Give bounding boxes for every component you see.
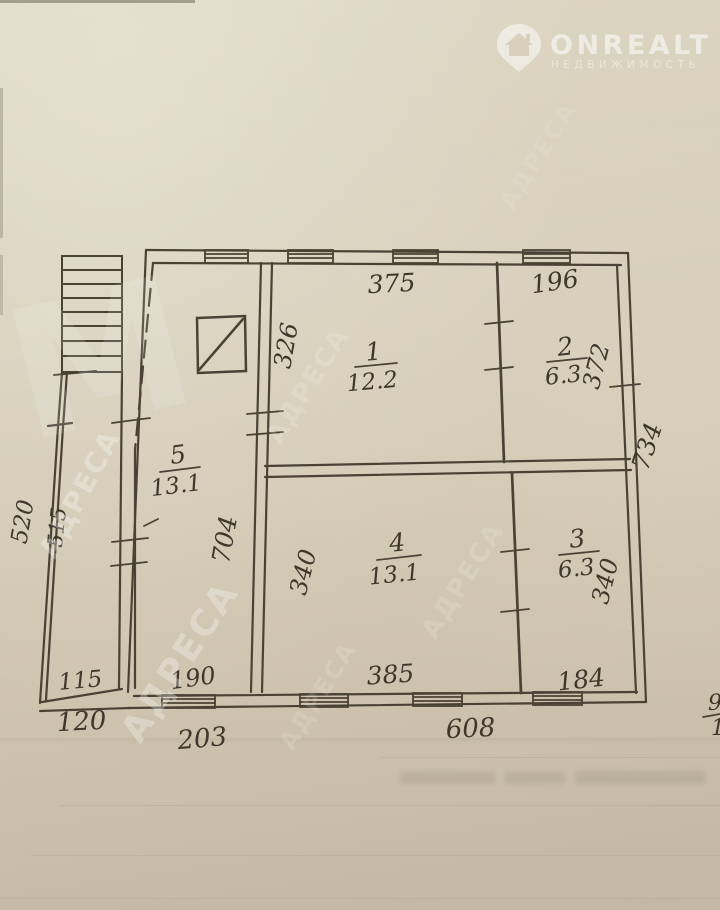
watermark-adresa: АДРЕСА <box>494 97 582 215</box>
room-5-area: 13.1 <box>149 470 203 502</box>
dim-room1-height-left: 326 <box>268 321 304 371</box>
room-1-area: 12.2 <box>346 367 399 397</box>
room-3-area: 6.3 <box>557 554 596 584</box>
partition-room4-room3 <box>512 473 521 693</box>
dim-bottom-total-width: 608 <box>445 713 496 746</box>
dim-room2-width-top: 196 <box>529 264 580 299</box>
dim-room1-width-top: 375 <box>367 268 416 299</box>
dim-right-total-height: 734 <box>626 419 668 473</box>
edge-fragment-denominator: 1 <box>711 716 720 741</box>
watermark-adresa: АДРЕСА <box>416 517 511 644</box>
partition-room1-room2 <box>497 263 504 462</box>
watermarks: М АДРЕСА АДРЕСА АДРЕСА АДРЕСА АДРЕСА АДР… <box>0 97 582 755</box>
onrealt-logo: ONREALT НЕДВИЖИМОСТЬ <box>497 24 711 72</box>
dim-porch-width: 115 <box>57 666 103 696</box>
onrealt-subtitle: НЕДВИЖИМОСТЬ <box>551 59 700 71</box>
stove-symbol <box>197 316 246 373</box>
room-1-number: 1 <box>364 336 382 366</box>
dim-hall-width-outer: 203 <box>175 722 228 756</box>
dim-room3-width-bottom: 184 <box>556 663 606 697</box>
dim-porch-width-outer: 120 <box>56 706 107 739</box>
dim-room4-height-left: 340 <box>284 546 322 597</box>
floor-plan-photo: 1 12.2 2 6.3 3 6.3 4 13.1 5 13.1 375 196… <box>0 0 720 910</box>
room-2-area: 6.3 <box>544 361 583 391</box>
room-3-number: 3 <box>568 523 587 554</box>
room-4-area: 13.1 <box>367 559 421 590</box>
room-4-number: 4 <box>387 527 407 558</box>
edge-fragment-numerator: 9 <box>708 691 720 716</box>
dim-room4-width-bottom: 385 <box>366 658 416 690</box>
room-2-number: 2 <box>555 331 575 362</box>
room-fraction-bars <box>160 358 720 717</box>
dim-left-outer-height-upper: 520 <box>6 498 39 546</box>
middle-wall <box>265 459 631 477</box>
dim-hall-height: 704 <box>206 514 243 566</box>
onrealt-pin-icon <box>497 24 541 72</box>
floor-plan-drawing: 1 12.2 2 6.3 3 6.3 4 13.1 5 13.1 375 196… <box>0 0 720 910</box>
dim-room2-height-right: 372 <box>577 340 615 391</box>
watermark-adresa: АДРЕСА <box>113 574 247 750</box>
onrealt-wordmark: ONREALT <box>550 30 711 61</box>
